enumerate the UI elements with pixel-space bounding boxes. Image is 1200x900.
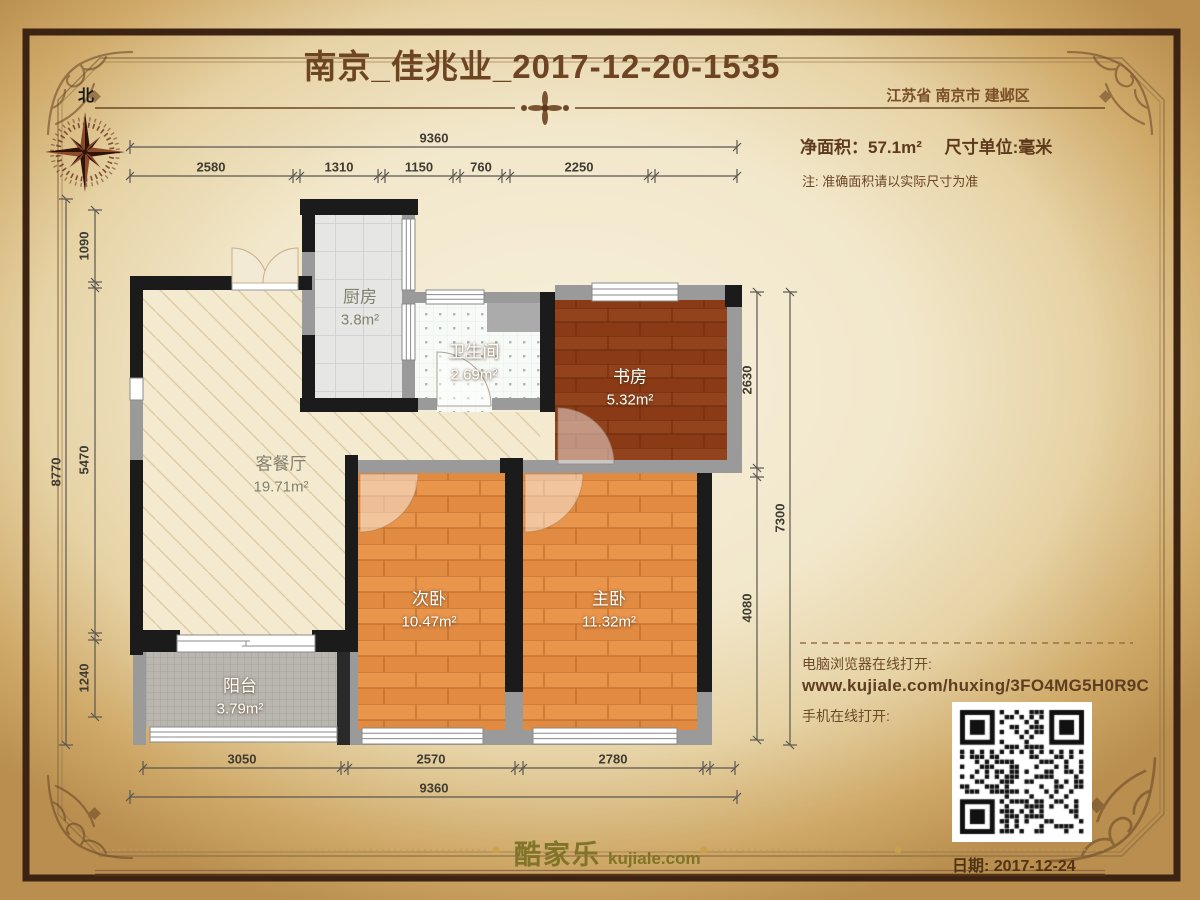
dim-top-seg: 1150 [405, 160, 433, 175]
dim-left-seg: 1240 [77, 664, 92, 693]
date-label: 日期: 2017-12-24 [952, 852, 1076, 876]
area-note: 注: 准确面积请以实际尺寸为准 [802, 171, 978, 190]
share-url: www.kujiale.com/huxing/3FO4MG5H0R9C [802, 676, 1149, 696]
dim-left-outer: 8770 [49, 458, 64, 487]
room-label-study: 书房5.32m² [607, 366, 654, 411]
dim-left-seg: 5470 [77, 446, 92, 475]
dim-right-seg: 2630 [740, 366, 755, 395]
dim-bottom-outer: 9360 [420, 781, 449, 796]
balcony-door-slider [177, 635, 315, 652]
dim-left-seg: 1090 [77, 232, 92, 261]
dim-top-seg: 2580 [197, 160, 226, 175]
room-label-bed2: 次卧10.47m² [401, 588, 456, 633]
net-area-label: 净面积：57.1m² [800, 138, 922, 157]
study-window [592, 283, 678, 301]
dim-bottom-seg: 2570 [417, 752, 446, 767]
dim-right-outer: 7300 [773, 504, 788, 533]
dim-bottom-seg: 2780 [599, 752, 628, 767]
logo-cn-text: 酷家乐 [514, 833, 601, 872]
compass-north-label: 北 [78, 82, 94, 106]
qr-code-icon [952, 702, 1092, 842]
unit-label: 尺寸单位:毫米 [945, 138, 1053, 157]
dim-right-seg: 4080 [740, 594, 755, 623]
kujiale-logo: 酷家乐 kujiale.com [514, 833, 701, 872]
page-title: 南京_佳兆业_2017-12-20-1535 [304, 40, 781, 88]
bed2-window [362, 728, 483, 744]
region-label: 江苏省 南京市 建邺区 [886, 85, 1029, 106]
entry-double-door [232, 248, 298, 290]
living-left-window [130, 378, 143, 400]
dim-top-seg: 760 [470, 160, 492, 175]
bed1-window [533, 728, 677, 744]
bath-window [426, 290, 484, 304]
balcony-window [150, 727, 337, 742]
room-label-kitchen: 厨房3.8m² [341, 286, 379, 331]
room-label-balcony: 阳台3.79m² [217, 675, 264, 720]
pc-open-label: 电脑浏览器在线打开: [802, 654, 932, 674]
logo-en-text: kujiale.com [608, 849, 701, 869]
dim-top-seg: 1310 [325, 160, 354, 175]
dim-top-outer: 9360 [420, 131, 449, 146]
fleur-ornament-icon [528, 91, 562, 125]
room-label-living: 客餐厅19.71m² [253, 453, 308, 498]
mobile-open-label: 手机在线打开: [802, 706, 890, 726]
room-label-bath: 卫生间2.69m² [449, 341, 500, 386]
floorplan-page: { "page": { "title": "南京_佳兆业_2017-12-20-… [0, 0, 1200, 900]
room-label-bed1: 主卧11.32m² [582, 588, 636, 633]
net-area-info: 净面积：57.1m² 尺寸单位:毫米 [800, 133, 1052, 158]
dim-bottom-seg: 3050 [228, 752, 257, 767]
dim-top-seg: 2250 [565, 160, 594, 175]
kitchen-window [402, 219, 415, 360]
